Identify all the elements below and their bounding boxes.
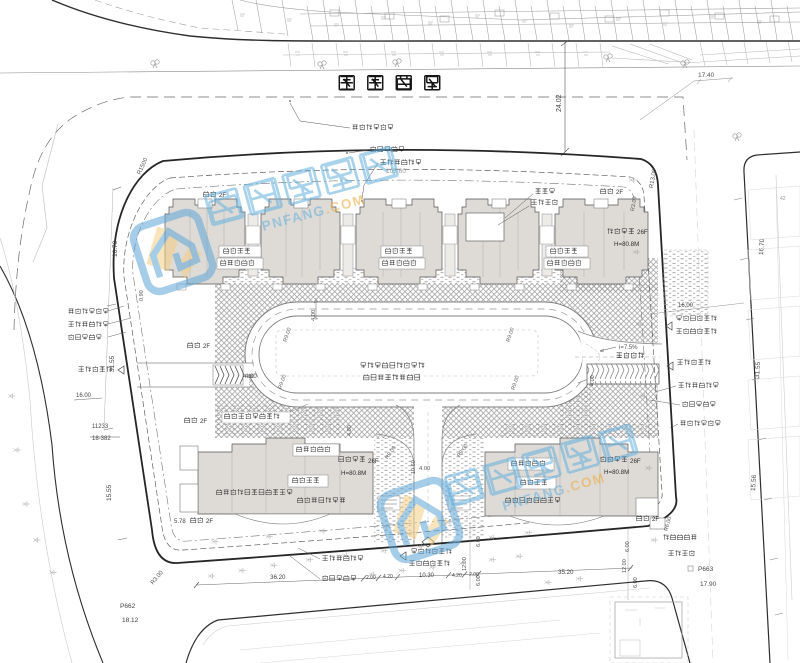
svg-text:26F: 26F [368, 458, 379, 465]
svg-text:2F: 2F [200, 419, 207, 425]
svg-text:26F: 26F [637, 229, 648, 236]
svg-text:4.00: 4.00 [347, 425, 353, 436]
svg-text:2F: 2F [203, 344, 210, 350]
svg-text:4.00: 4.00 [419, 466, 430, 472]
svg-text:4.20: 4.20 [452, 573, 462, 579]
svg-text:17.40: 17.40 [698, 72, 715, 79]
svg-text:10.60: 10.60 [411, 460, 417, 474]
svg-text:H=80.8M: H=80.8M [341, 470, 366, 477]
svg-text:4.00: 4.00 [590, 375, 596, 386]
svg-text:10.30: 10.30 [419, 573, 435, 579]
svg-text:16.00: 16.00 [678, 303, 694, 309]
svg-text:36.20: 36.20 [270, 574, 286, 581]
svg-text:2F: 2F [206, 519, 213, 525]
svg-text:16.70: 16.70 [112, 240, 119, 257]
svg-text:6.00: 6.00 [476, 575, 482, 586]
svg-text:4.20: 4.20 [383, 574, 393, 580]
svg-text:15.55: 15.55 [106, 484, 113, 501]
svg-text:4.00: 4.00 [243, 374, 254, 380]
svg-text:6.00: 6.00 [476, 536, 482, 547]
svg-text:18.12: 18.12 [122, 617, 139, 624]
svg-text:31.55: 31.55 [109, 355, 116, 372]
svg-text:5.78: 5.78 [174, 519, 186, 525]
svg-text:6.00: 6.00 [633, 577, 639, 588]
svg-text:P662: P662 [120, 603, 136, 610]
svg-text:2F: 2F [652, 517, 659, 523]
svg-text:16.70: 16.70 [758, 238, 766, 255]
svg-text:26F: 26F [630, 458, 641, 465]
svg-text:42: 42 [780, 196, 786, 202]
svg-text:6.00: 6.00 [625, 541, 631, 552]
svg-text:i=7.5%: i=7.5% [619, 345, 638, 351]
svg-text:2.00: 2.00 [366, 575, 376, 581]
svg-text:12.00: 12.00 [622, 559, 628, 573]
svg-text:P663: P663 [698, 566, 714, 573]
svg-text:16.00: 16.00 [76, 393, 92, 399]
svg-text:15.56: 15.56 [750, 474, 758, 491]
svg-text:12.00: 12.00 [462, 557, 468, 571]
svg-text:2F: 2F [616, 190, 623, 196]
svg-text:H=80.8M: H=80.8M [604, 469, 629, 476]
svg-text:35.20: 35.20 [558, 569, 574, 576]
svg-text:11233: 11233 [92, 424, 109, 430]
svg-text:H=80.8M: H=80.8M [614, 241, 639, 248]
svg-text:0.90: 0.90 [139, 290, 145, 301]
svg-text:17.90: 17.90 [700, 581, 717, 588]
svg-text:24.02: 24.02 [556, 94, 563, 112]
